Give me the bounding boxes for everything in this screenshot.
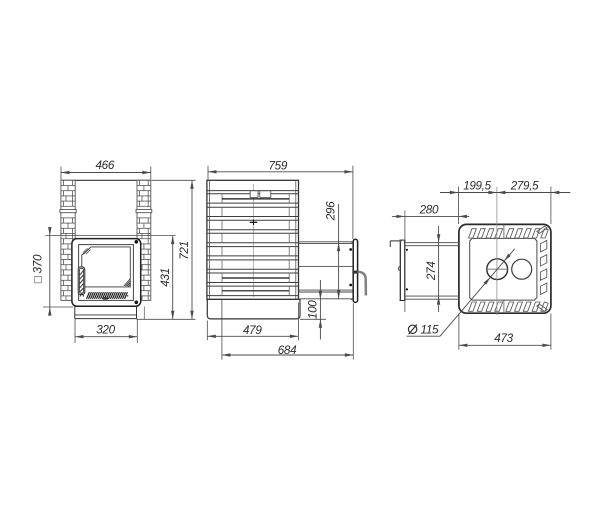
svg-text:199,5: 199,5 xyxy=(463,179,491,192)
svg-text:279,5: 279,5 xyxy=(510,179,539,192)
svg-text:100: 100 xyxy=(307,300,320,319)
svg-text:473: 473 xyxy=(494,332,513,345)
svg-text:759: 759 xyxy=(268,160,287,173)
svg-text:□ 370: □ 370 xyxy=(32,254,45,283)
svg-text:431: 431 xyxy=(159,268,172,287)
svg-text:479: 479 xyxy=(243,324,262,337)
svg-text:115: 115 xyxy=(421,323,440,336)
svg-text:296: 296 xyxy=(325,201,338,221)
svg-text:280: 280 xyxy=(419,203,439,216)
svg-text:320: 320 xyxy=(96,324,115,337)
svg-text:274: 274 xyxy=(425,261,438,281)
svg-text:466: 466 xyxy=(95,159,114,172)
svg-text:721: 721 xyxy=(178,241,191,260)
svg-text:684: 684 xyxy=(278,344,297,357)
